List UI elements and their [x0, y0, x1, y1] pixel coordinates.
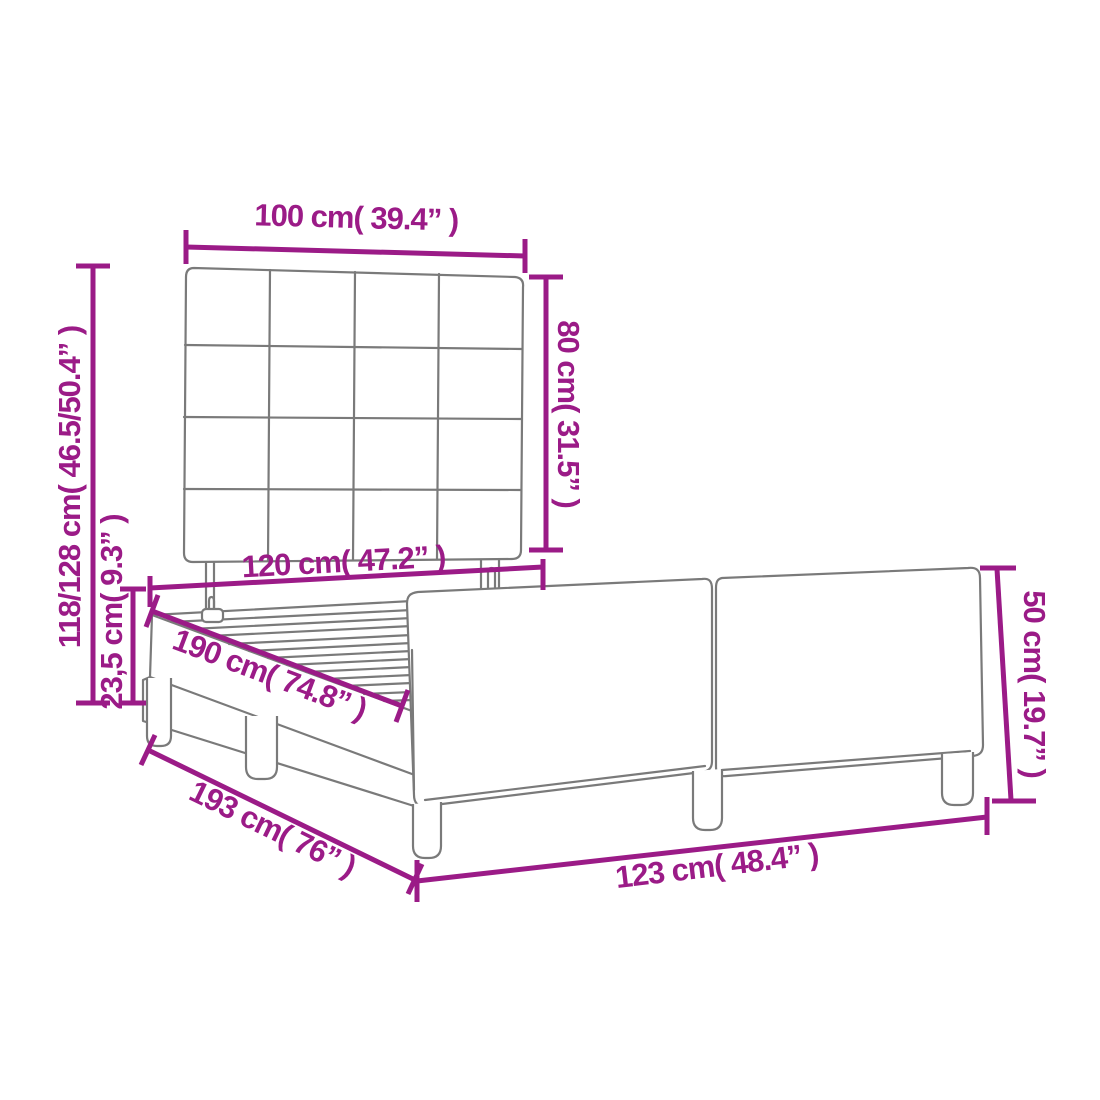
slat-line: [249, 643, 412, 651]
headboard: [184, 268, 523, 562]
bed-leg: [942, 752, 973, 805]
slat-line: [229, 635, 412, 644]
strut-bracket: [202, 609, 223, 622]
bed-leg: [246, 716, 277, 779]
dim-label-frame-height: 23,5 cm( 9.3” ): [94, 514, 129, 709]
diagram-canvas: 100 cm( 39.4” ) 80 cm( 31.5” ) 118/128 c…: [0, 0, 1100, 1100]
dim-headboard-width: [186, 230, 525, 273]
side-panel-left: [407, 579, 712, 806]
slat-line: [268, 651, 412, 658]
rail-left-end: [150, 615, 152, 677]
dim-label-footboard-height: 50 cm( 19.7” ): [1017, 590, 1052, 778]
slat-line: [287, 659, 412, 665]
dim-label-overall-height: 118/128 cm( 46.5/50.4” ): [52, 326, 87, 648]
grid-line: [184, 489, 521, 490]
side-panel-right: [716, 568, 983, 776]
dim-label-overall-length: 193 cm( 76” ): [184, 773, 361, 883]
dim-label-headboard-height: 80 cm( 31.5” ): [551, 320, 586, 508]
bed-leg: [693, 769, 722, 830]
headboard-strut-left: [202, 556, 223, 622]
dim-line: [997, 569, 1011, 800]
bed-frame-dimension-diagram: 100 cm( 39.4” ) 80 cm( 31.5” ) 118/128 c…: [0, 0, 1100, 1100]
slat-line: [306, 667, 412, 672]
slat-line: [326, 675, 412, 679]
bed-leg: [147, 678, 171, 746]
dim-label-headboard-width: 100 cm( 39.4” ): [254, 197, 459, 237]
side-panels: [407, 568, 983, 806]
bed-leg: [413, 802, 441, 858]
dim-line: [186, 247, 525, 256]
